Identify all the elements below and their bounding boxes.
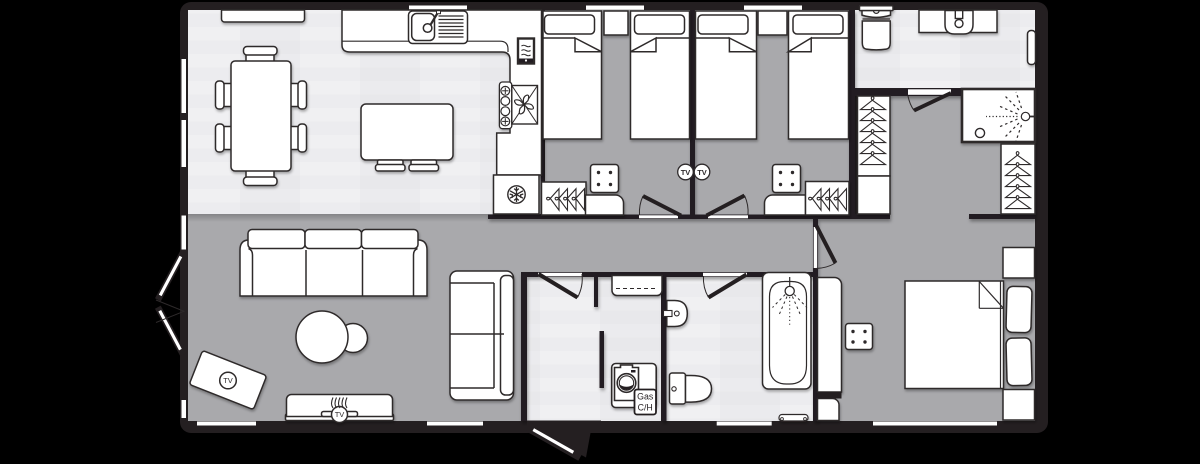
svg-text:TV: TV xyxy=(681,168,691,177)
svg-text:TV: TV xyxy=(223,376,233,385)
svg-text:TV: TV xyxy=(335,410,345,419)
svg-text:Gas: Gas xyxy=(637,392,654,402)
svg-text:C/H: C/H xyxy=(638,403,653,413)
svg-text:TV: TV xyxy=(697,168,707,177)
